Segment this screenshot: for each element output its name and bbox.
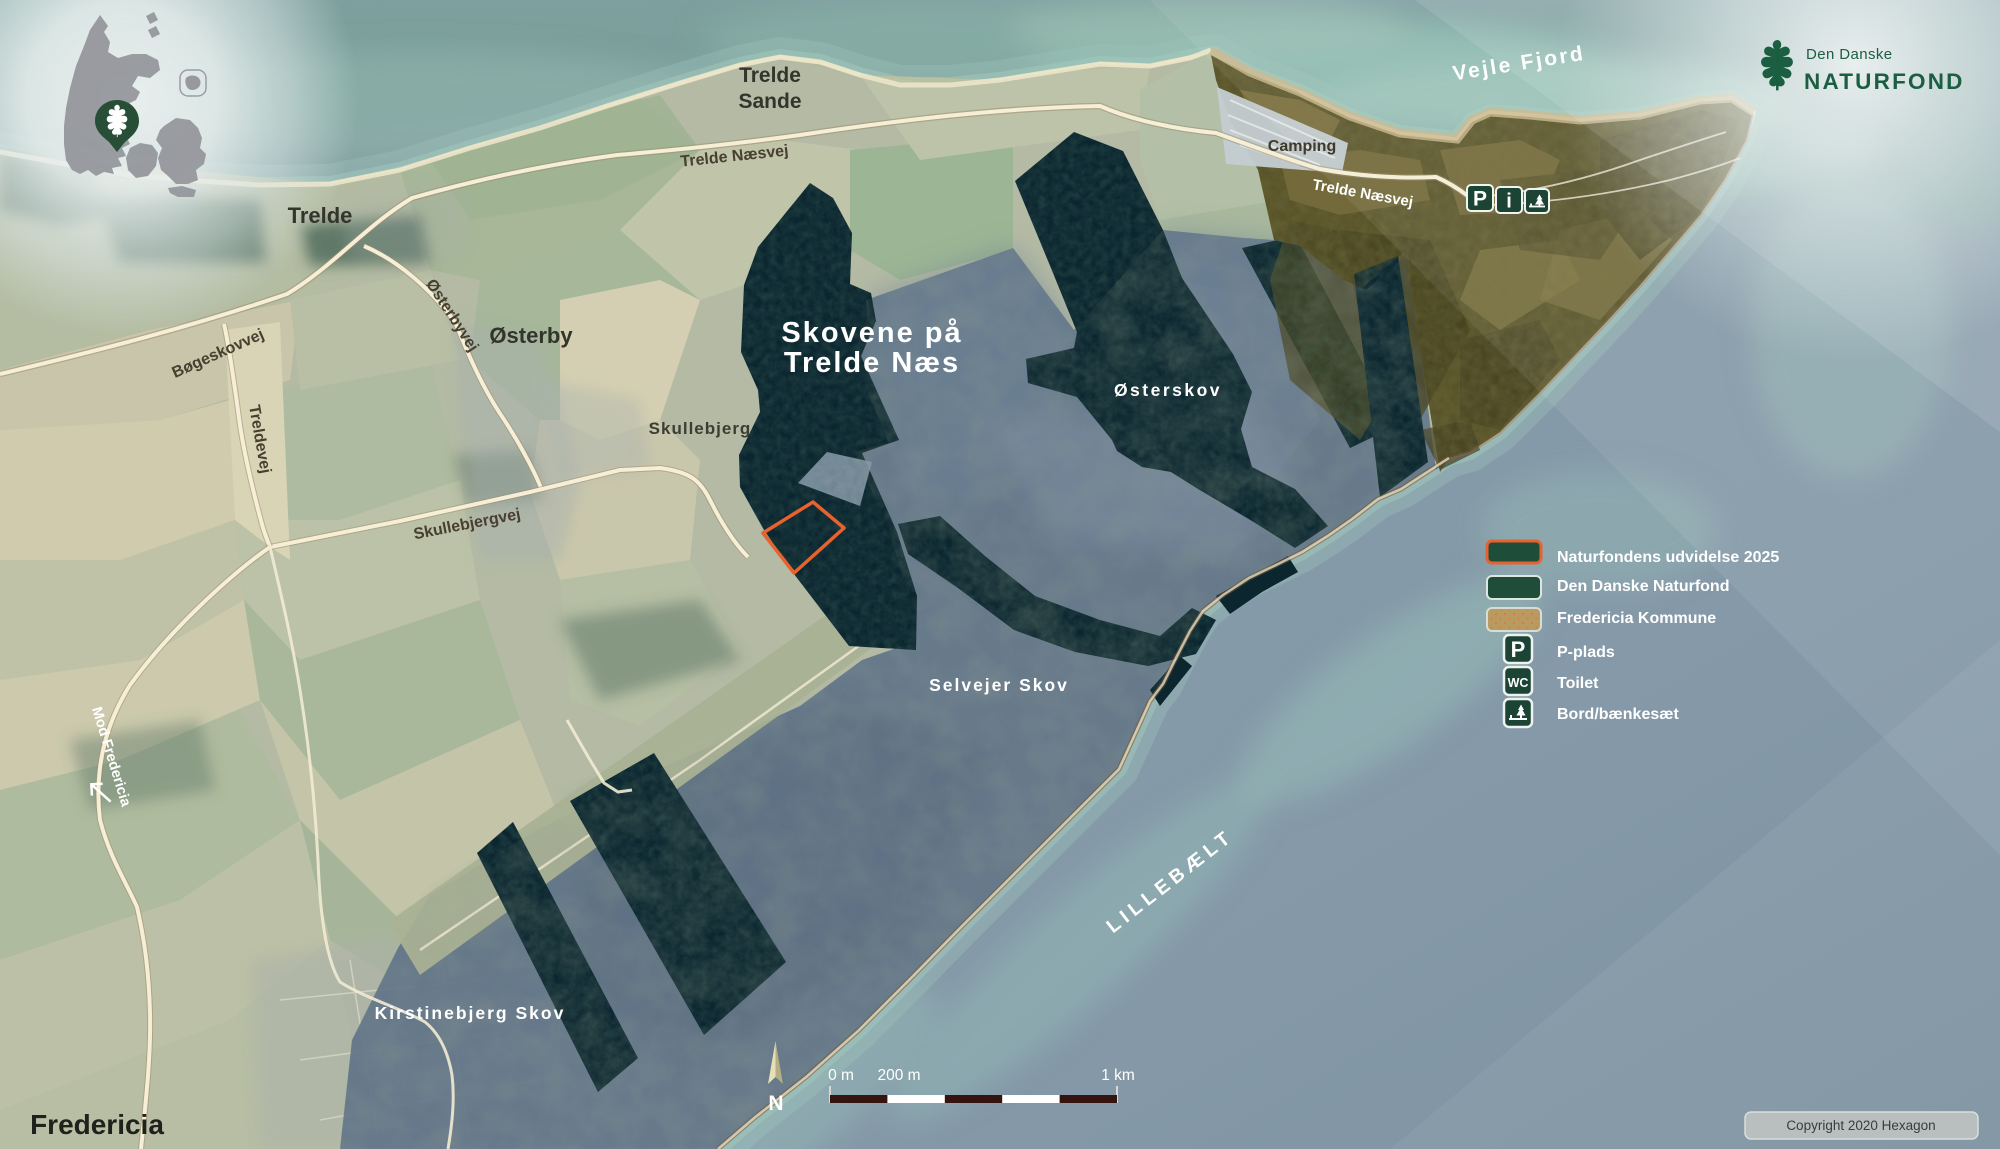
svg-text:Den Danske: Den Danske xyxy=(1806,46,1893,63)
svg-text:Kirstinebjerg Skov: Kirstinebjerg Skov xyxy=(375,1003,566,1023)
svg-text:Skovene på: Skovene på xyxy=(781,317,962,349)
svg-text:Østerskov: Østerskov xyxy=(1114,380,1222,400)
svg-text:Camping: Camping xyxy=(1268,138,1336,155)
svg-text:NATURFOND: NATURFOND xyxy=(1804,69,1965,94)
svg-text:Fredericia Kommune: Fredericia Kommune xyxy=(1557,610,1716,627)
svg-text:Selvejer Skov: Selvejer Skov xyxy=(929,675,1069,695)
svg-text:Naturfondens udvidelse 2025: Naturfondens udvidelse 2025 xyxy=(1557,549,1779,566)
svg-text:N: N xyxy=(768,1092,783,1115)
svg-text:Østerby: Østerby xyxy=(489,323,573,348)
svg-text:P: P xyxy=(1511,637,1526,662)
svg-text:0 m: 0 m xyxy=(828,1067,854,1084)
svg-text:200 m: 200 m xyxy=(877,1067,920,1084)
svg-text:1 km: 1 km xyxy=(1101,1067,1135,1084)
svg-text:Den Danske Naturfond: Den Danske Naturfond xyxy=(1557,578,1729,595)
svg-text:WC: WC xyxy=(1508,676,1529,690)
svg-text:Bord/bænkesæt: Bord/bænkesæt xyxy=(1557,706,1679,723)
svg-text:Copyright 2020 Hexagon: Copyright 2020 Hexagon xyxy=(1786,1118,1935,1133)
svg-text:Sande: Sande xyxy=(738,90,801,113)
svg-text:Trelde: Trelde xyxy=(739,64,801,87)
svg-text:P: P xyxy=(1473,188,1487,211)
svg-text:i: i xyxy=(1506,191,1512,213)
svg-text:P-plads: P-plads xyxy=(1557,644,1615,661)
svg-text:Trelde Næs: Trelde Næs xyxy=(784,347,960,379)
svg-text:Skullebjerg: Skullebjerg xyxy=(649,419,752,438)
svg-text:Toilet: Toilet xyxy=(1557,675,1599,692)
svg-text:Fredericia: Fredericia xyxy=(30,1109,164,1140)
svg-text:Trelde: Trelde xyxy=(288,203,353,228)
